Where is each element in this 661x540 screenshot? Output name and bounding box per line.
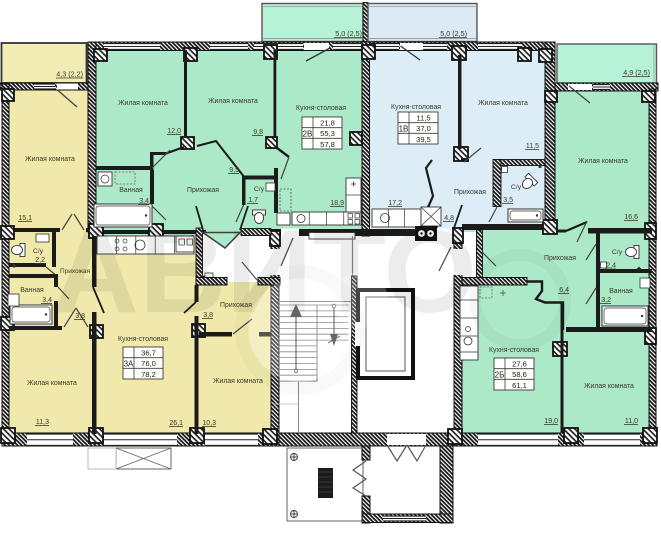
svg-text:1В: 1В <box>399 125 409 134</box>
svg-text:11,5: 11,5 <box>416 114 430 123</box>
svg-text:Жилая комната: Жилая комната <box>578 158 628 165</box>
svg-text:11,0: 11,0 <box>625 418 638 425</box>
svg-text:Жилая комната: Жилая комната <box>27 380 77 387</box>
svg-text:Ванная: Ванная <box>20 287 44 294</box>
svg-text:39,5: 39,5 <box>416 135 431 144</box>
svg-text:Жилая комната: Жилая комната <box>213 378 263 385</box>
svg-text:3,4: 3,4 <box>139 198 149 205</box>
svg-text:С/у: С/у <box>511 184 522 191</box>
svg-text:2В: 2В <box>303 130 313 139</box>
svg-text:11,5: 11,5 <box>526 143 539 150</box>
svg-text:Прихожая: Прихожая <box>187 187 219 194</box>
svg-text:С/у: С/у <box>254 186 265 193</box>
svg-text:Жилая комната: Жилая комната <box>118 100 168 107</box>
svg-text:16,6: 16,6 <box>624 214 638 221</box>
svg-text:Жилая комната: Жилая комната <box>25 156 75 163</box>
svg-text:4,3 (2,2): 4,3 (2,2) <box>56 70 83 79</box>
svg-text:Жилая комната: Жилая комната <box>478 100 528 107</box>
svg-text:36,7: 36,7 <box>141 349 156 358</box>
svg-text:26,1: 26,1 <box>169 420 183 427</box>
svg-text:Кухня-столовая: Кухня-столовая <box>296 105 346 112</box>
svg-text:55,3: 55,3 <box>320 129 335 138</box>
svg-text:2Б: 2Б <box>495 371 505 380</box>
svg-text:57,8: 57,8 <box>320 140 335 149</box>
svg-text:12,0: 12,0 <box>167 128 181 135</box>
svg-text:2,4: 2,4 <box>606 263 616 270</box>
svg-text:2,2: 2,2 <box>35 257 45 264</box>
svg-text:58,6: 58,6 <box>512 370 527 379</box>
svg-text:Ванная: Ванная <box>119 187 143 194</box>
svg-text:3,4: 3,4 <box>42 297 52 304</box>
svg-text:5,0 (2,5): 5,0 (2,5) <box>440 29 467 38</box>
svg-text:76,0: 76,0 <box>141 359 156 368</box>
svg-text:10,3: 10,3 <box>202 420 216 427</box>
svg-text:Прихожая: Прихожая <box>454 189 486 196</box>
svg-text:3,2: 3,2 <box>601 297 611 304</box>
svg-text:Ванная: Ванная <box>609 288 633 295</box>
svg-text:С/у: С/у <box>33 248 44 255</box>
svg-text:С/у: С/у <box>612 249 623 256</box>
svg-text:3,5: 3,5 <box>503 197 513 204</box>
svg-text:4,9 (2,5): 4,9 (2,5) <box>623 68 650 77</box>
svg-text:Жилая комната: Жилая комната <box>208 98 258 105</box>
svg-text:9,8: 9,8 <box>253 129 263 136</box>
svg-text:9,5: 9,5 <box>229 167 239 174</box>
svg-text:27,6: 27,6 <box>512 360 527 369</box>
svg-text:1,7: 1,7 <box>248 197 258 204</box>
svg-text:15,1: 15,1 <box>18 215 32 222</box>
svg-text:19,0: 19,0 <box>544 418 558 425</box>
svg-text:5,0 (2,5): 5,0 (2,5) <box>335 29 362 38</box>
svg-text:37,0: 37,0 <box>416 124 431 133</box>
svg-text:21,8: 21,8 <box>320 119 335 128</box>
svg-text:11,3: 11,3 <box>36 419 49 426</box>
svg-text:78,2: 78,2 <box>141 370 156 379</box>
svg-text:Жилая комната: Жилая комната <box>584 383 634 390</box>
svg-text:61,1: 61,1 <box>512 381 527 390</box>
svg-text:3А: 3А <box>124 360 134 369</box>
svg-text:Кухня-столовая: Кухня-столовая <box>391 104 441 111</box>
